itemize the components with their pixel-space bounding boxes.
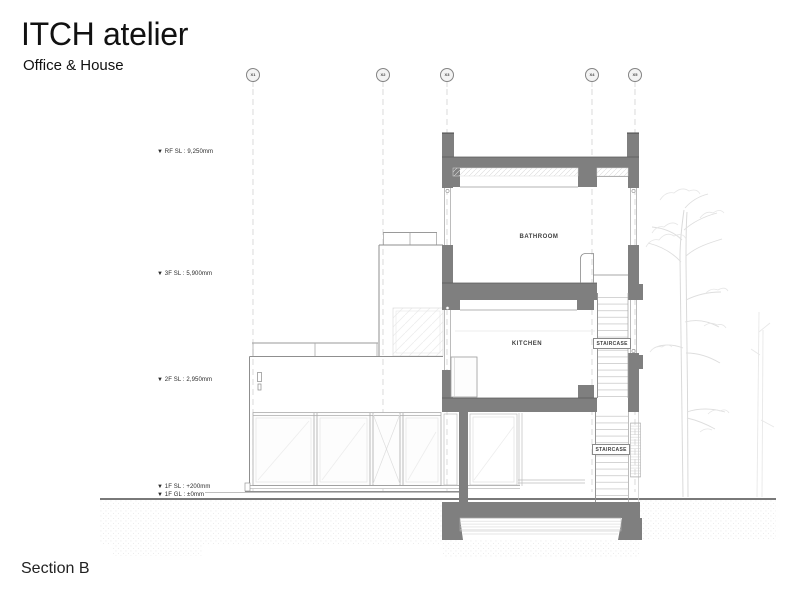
parapet-left [442, 133, 454, 157]
kitchen-counter [451, 357, 477, 397]
tree-sketch [646, 189, 774, 497]
bathtub-profile [581, 254, 629, 284]
grid-marker-x2: X2 [376, 68, 390, 82]
second-floor-slab [442, 398, 597, 412]
parapet-right [627, 133, 639, 157]
ground [100, 493, 776, 558]
footing-right [618, 518, 642, 540]
grid-marker-x1-label: X1 [251, 73, 256, 77]
grid-marker-x4-label: X4 [590, 73, 595, 77]
grid-marker-x5-label: X5 [633, 73, 638, 77]
section-drawing [0, 0, 800, 595]
glazing-ground-floor [253, 413, 441, 486]
room-label-staircase-lower: STAIRCASE [592, 444, 630, 455]
level-marker-1f-gl: ▼ 1F GL : ±0mm [157, 492, 204, 498]
level-marker-2f: ▼ 2F SL : 2,950mm [157, 377, 212, 383]
level-marker-rf: ▼ RF SL : 9,250mm [157, 149, 213, 155]
ground-floor-column [459, 412, 468, 502]
grid-marker-x2-label: X2 [381, 73, 386, 77]
room-label-staircase-upper: STAIRCASE [593, 338, 631, 349]
grid-marker-x3: X3 [440, 68, 454, 82]
drawing-subtitle: Office & House [23, 57, 124, 74]
level-marker-1f-sl: ▼ 1F SL : +200mm [157, 484, 211, 490]
roof-beam [578, 168, 597, 187]
grid-marker-x3-label: X3 [445, 73, 450, 77]
foundation-band [442, 502, 640, 518]
grid-marker-x1: X1 [246, 68, 260, 82]
grid-marker-x4: X4 [585, 68, 599, 82]
staircase-lower [596, 412, 641, 502]
hatched-wall [631, 423, 641, 477]
room-label-bathroom: BATHROOM [499, 234, 579, 240]
third-floor-slab [442, 283, 597, 300]
room-label-kitchen: KITCHEN [487, 341, 567, 347]
annex-elevation [245, 233, 520, 493]
section-drawing-sheet: ITCH atelier Office & House Section B X1… [0, 0, 800, 595]
drawing-title: ITCH atelier [21, 16, 188, 53]
level-marker-3f: ▼ 3F SL : 5,900mm [157, 271, 212, 277]
roof-slab [442, 157, 639, 168]
grid-marker-x5: X5 [628, 68, 642, 82]
section-name-label: Section B [21, 560, 89, 578]
